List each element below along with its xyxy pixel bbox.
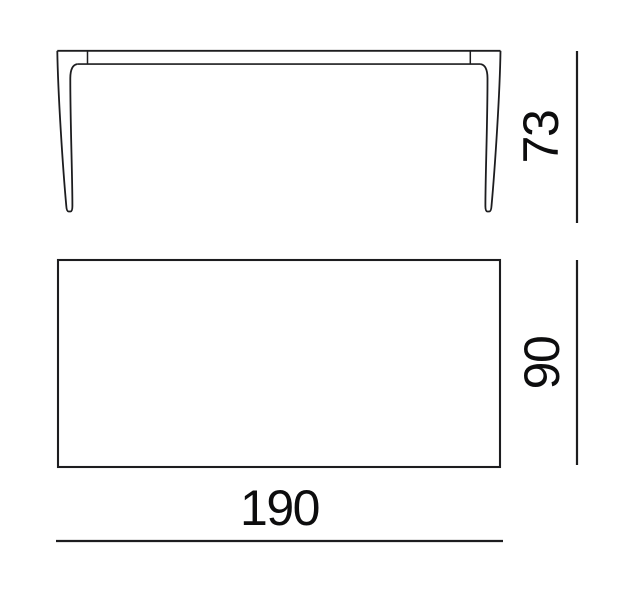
plan-view: 90 190 [56,260,577,541]
height-dimension-label: 73 [513,111,569,164]
table-technical-drawing: 73 90 190 [0,0,626,608]
depth-dimension-label: 90 [514,337,570,390]
left-leg-outline [57,51,77,212]
front-elevation-view: 73 [57,51,577,223]
drawing-canvas: 73 90 190 [0,0,626,608]
width-dimension-label: 190 [240,480,319,536]
right-leg-outline [481,51,501,212]
tabletop-plan-outline [58,260,500,467]
